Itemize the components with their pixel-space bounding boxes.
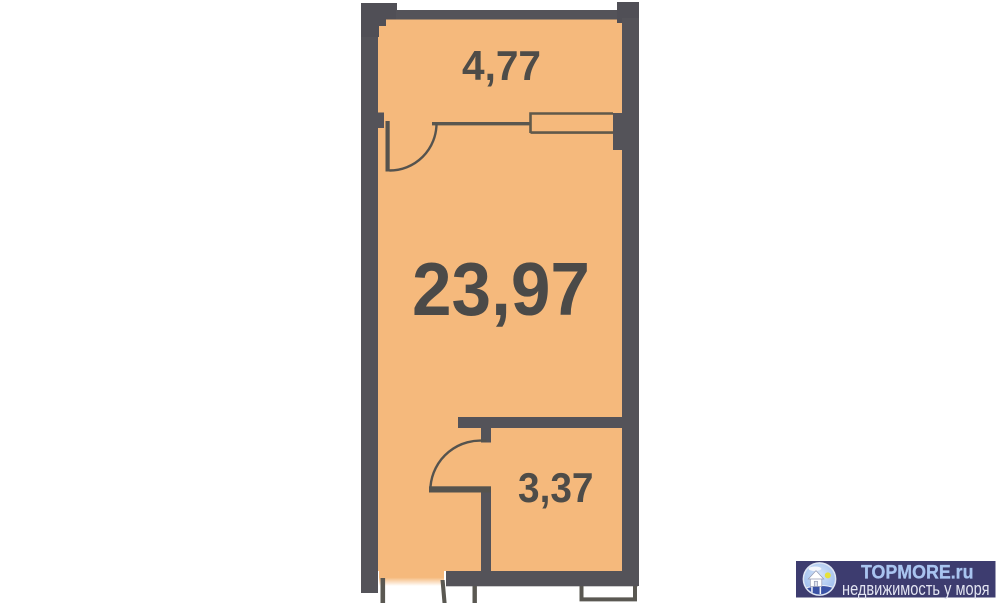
svg-text:4,77: 4,77: [462, 42, 541, 89]
svg-text:23,97: 23,97: [412, 247, 590, 331]
svg-text:недвижимость у моря: недвижимость у моря: [842, 578, 990, 599]
svg-text:3,37: 3,37: [518, 464, 594, 511]
